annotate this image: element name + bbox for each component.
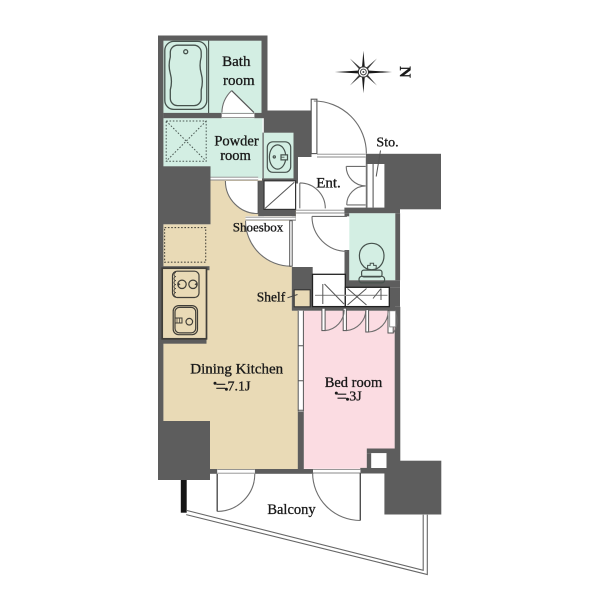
svg-text:room: room	[220, 148, 251, 164]
svg-text:Balcony: Balcony	[267, 502, 316, 518]
svg-text:Shoesbox: Shoesbox	[233, 220, 284, 235]
svg-text:7.1J: 7.1J	[228, 380, 252, 395]
svg-text:Ent.: Ent.	[316, 176, 341, 192]
svg-text:Shelf: Shelf	[257, 290, 286, 305]
svg-text:N: N	[396, 66, 413, 78]
svg-text:Dining Kitchen: Dining Kitchen	[190, 361, 283, 377]
svg-text:3J: 3J	[349, 390, 362, 405]
svg-text:room: room	[223, 73, 255, 89]
svg-text:Sto.: Sto.	[376, 136, 398, 151]
svg-text:Bath: Bath	[222, 54, 251, 70]
